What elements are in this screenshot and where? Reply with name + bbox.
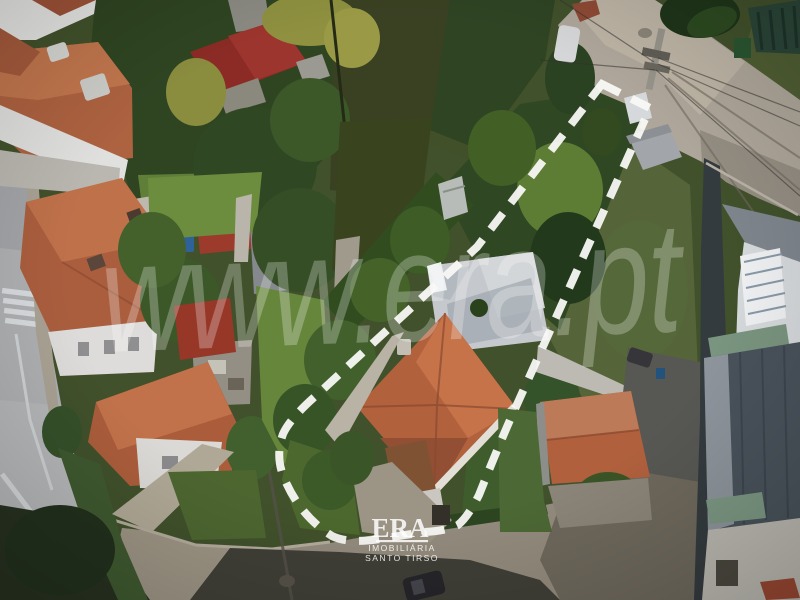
svg-text:ERA: ERA: [371, 513, 429, 543]
svg-text:www.era.pt: www.era.pt: [98, 188, 689, 386]
svg-text:IMOBILIÁRIA: IMOBILIÁRIA: [368, 543, 436, 553]
svg-text:SANTO TIRSO: SANTO TIRSO: [365, 553, 439, 563]
